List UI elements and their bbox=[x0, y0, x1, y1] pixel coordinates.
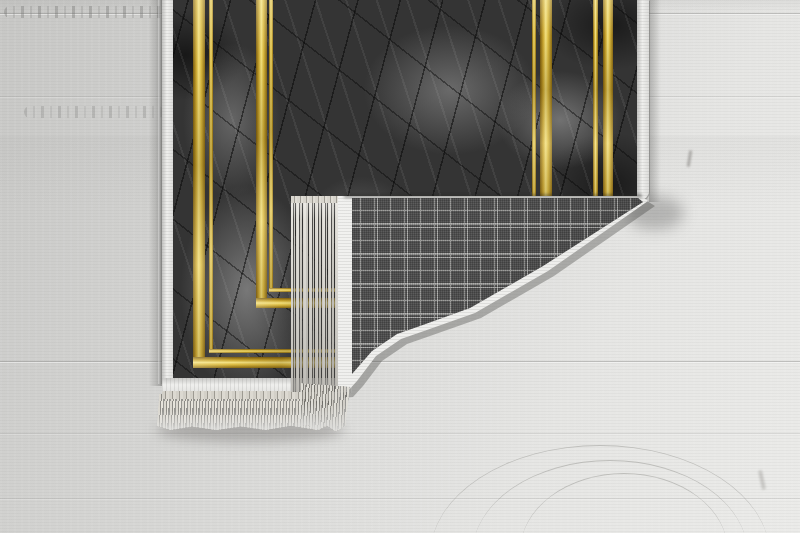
gold-line-left-outer-thin bbox=[209, 0, 213, 353]
fold-fringe-tassels bbox=[298, 383, 350, 432]
gold-line-right-outer-thick bbox=[603, 0, 613, 199]
rug-right-shadow bbox=[649, 0, 661, 202]
gold-line-left-outer-thick bbox=[193, 0, 205, 368]
gold-line-right-inner-thin bbox=[532, 0, 536, 199]
wood-grain-marks bbox=[24, 106, 164, 118]
rug-binding-left bbox=[162, 0, 173, 382]
plank-seam bbox=[0, 361, 800, 363]
gold-line-right-inner-thick bbox=[540, 0, 552, 199]
gold-line-left-inner-thick bbox=[256, 0, 267, 308]
product-photo bbox=[0, 0, 800, 533]
gold-line-left-inner-thin bbox=[269, 0, 273, 292]
fold-fringe-strip bbox=[291, 196, 338, 392]
fold-crease-shadow bbox=[344, 194, 642, 198]
gold-line-right-outer-thin bbox=[593, 0, 598, 199]
plank-seam bbox=[0, 433, 800, 435]
fold-fringe-knots bbox=[291, 196, 338, 203]
rug-binding-right bbox=[637, 0, 649, 200]
